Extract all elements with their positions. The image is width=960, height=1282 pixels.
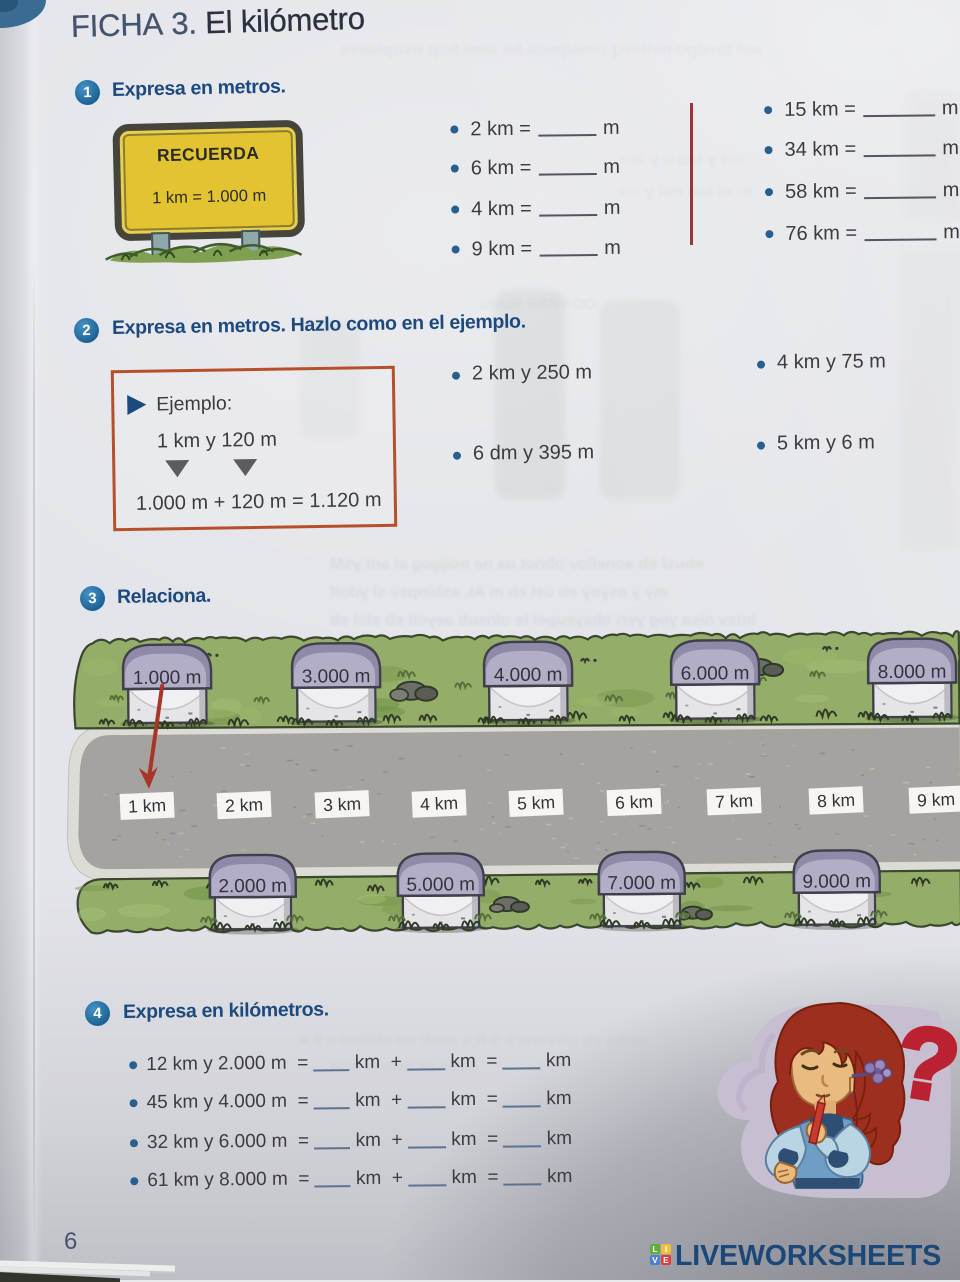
svg-text:4 km: 4 km xyxy=(420,793,459,815)
svg-text:1.000 m: 1.000 m xyxy=(133,667,202,689)
svg-text:6 km: 6 km xyxy=(615,791,654,813)
svg-text:5.000 m: 5.000 m xyxy=(406,874,475,896)
svg-text:5 km: 5 km xyxy=(517,792,556,814)
svg-text:8 km: 8 km xyxy=(817,790,856,812)
svg-text:3.000 m: 3.000 m xyxy=(302,666,371,688)
svg-text:9.000 m: 9.000 m xyxy=(802,871,871,893)
svg-text:7.000 m: 7.000 m xyxy=(607,873,676,895)
svg-text:2 km: 2 km xyxy=(225,794,264,816)
svg-text:8.000 m: 8.000 m xyxy=(878,662,947,684)
svg-text:1 km: 1 km xyxy=(128,795,167,817)
svg-text:4.000 m: 4.000 m xyxy=(494,665,563,687)
svg-text:9 km: 9 km xyxy=(917,789,956,811)
svg-text:6.000 m: 6.000 m xyxy=(681,663,750,685)
svg-text:7 km: 7 km xyxy=(715,790,754,812)
svg-text:2.000 m: 2.000 m xyxy=(218,876,287,898)
svg-text:3 km: 3 km xyxy=(323,794,362,816)
